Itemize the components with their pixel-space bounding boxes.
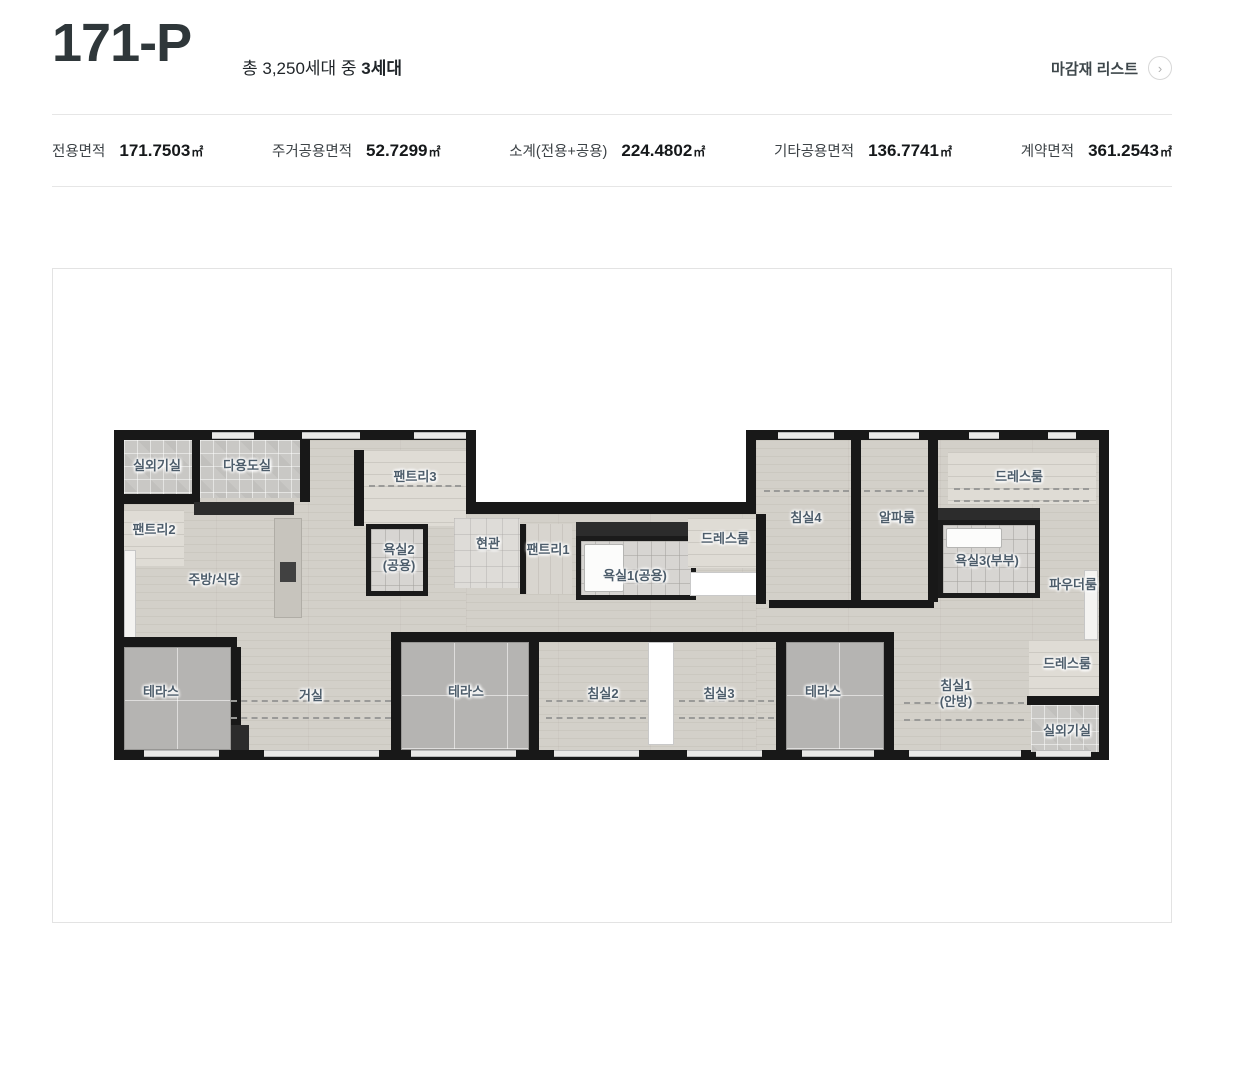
plan-wall — [756, 514, 766, 604]
content: 171-P 총 3,250세대 중 3세대 마감재 리스트 › 전용면적 171… — [52, 0, 1172, 923]
room-label: 실외기실 — [1043, 723, 1091, 739]
plan-window — [687, 750, 762, 757]
plan-dash — [764, 490, 849, 492]
room-label: 욕실2 (공용) — [383, 542, 416, 575]
plan-window — [264, 750, 379, 757]
plan-wall — [851, 440, 861, 602]
plan-wall — [529, 632, 539, 760]
spec-label: 전용면적 — [52, 140, 105, 161]
cooktop — [280, 562, 296, 582]
plan-dash — [954, 488, 1089, 490]
plan-wall — [124, 494, 192, 504]
plan-dash — [904, 719, 1024, 721]
finish-material-list-link[interactable]: 마감재 리스트 › — [1051, 56, 1172, 80]
spec-contract-area: 계약면적 361.2543 ㎡ — [1021, 140, 1172, 161]
plan-window — [969, 432, 999, 439]
room-label: 침실1 (안방) — [940, 678, 973, 711]
spec-exclusive-area: 전용면적 171.7503 ㎡ — [52, 140, 203, 161]
plan-window — [302, 432, 360, 439]
spec-unit: ㎡ — [429, 143, 441, 160]
plan-window — [1048, 432, 1076, 439]
plan-wall — [884, 632, 894, 760]
room-entrance — [454, 518, 520, 588]
room-label: 알파룸 — [879, 510, 915, 526]
room-label: 테라스 — [448, 684, 484, 700]
plan-dark — [576, 522, 696, 536]
plan-dash — [864, 490, 924, 492]
spec-other-shared-area: 기타공용면적 136.7741 ㎡ — [774, 140, 952, 161]
top-notch — [476, 430, 746, 502]
room-label: 현관 — [476, 536, 500, 552]
closet-bed2-bed3 — [648, 642, 674, 745]
bathtub-3 — [946, 528, 1002, 548]
unit-count-bold: 3세대 — [361, 59, 402, 78]
plan-wall — [231, 647, 241, 732]
room-label: 테라스 — [805, 684, 841, 700]
plan-wall — [928, 440, 938, 602]
room-label: 드레스룸 — [995, 469, 1043, 485]
room-pantry1 — [526, 524, 572, 594]
plan-wall — [674, 632, 776, 642]
plan-wall — [776, 632, 786, 760]
spec-subtotal-area: 소계(전용+공용) 224.4802 ㎡ — [509, 140, 705, 161]
plan-window — [778, 432, 834, 439]
area-specs-row: 전용면적 171.7503 ㎡ 주거공용면적 52.7299 ㎡ 소계(전용+공… — [52, 115, 1172, 187]
room-label: 침실4 — [790, 510, 821, 526]
plan-window — [554, 750, 639, 757]
room-label: 다용도실 — [223, 458, 271, 474]
room-label: 파우더룸 — [1049, 577, 1097, 593]
plan-dash — [546, 717, 646, 719]
plan-window — [909, 750, 1021, 757]
room-label: 드레스룸 — [701, 531, 749, 547]
plan-white — [690, 572, 758, 596]
plan-wall — [300, 440, 310, 502]
plan-wall — [539, 632, 651, 642]
spec-unit: ㎡ — [940, 143, 952, 160]
room-label: 침실2 — [587, 686, 618, 702]
spec-label: 주거공용면적 — [272, 140, 352, 161]
room-label: 주방/식당 — [188, 572, 239, 588]
finish-material-list-label: 마감재 리스트 — [1051, 58, 1138, 79]
page-title: 171-P — [52, 12, 191, 74]
plan-dash — [679, 717, 774, 719]
floorplan-panel: 실외기실다용도실팬트리2팬트리3주방/식당욕실2 (공용)현관팬트리1욕실1(공… — [52, 268, 1172, 923]
room-label: 테라스 — [143, 684, 179, 700]
plan-wall — [192, 440, 200, 504]
page: 171-P 총 3,250세대 중 3세대 마감재 리스트 › 전용면적 171… — [0, 0, 1236, 1084]
plan-dash — [954, 500, 1089, 502]
plan-wall — [776, 632, 894, 642]
spec-label: 계약면적 — [1021, 140, 1074, 161]
unit-count-prefix: 총 3,250세대 중 — [242, 59, 361, 78]
room-label: 드레스룸 — [1043, 656, 1091, 672]
header: 171-P 총 3,250세대 중 3세대 마감재 리스트 › — [52, 0, 1172, 114]
room-label: 팬트리1 — [526, 542, 569, 558]
floorplan: 실외기실다용도실팬트리2팬트리3주방/식당욕실2 (공용)현관팬트리1욕실1(공… — [114, 430, 1109, 760]
plan-window — [1036, 750, 1091, 757]
spec-label: 기타공용면적 — [774, 140, 854, 161]
room-label: 실외기실 — [133, 458, 181, 474]
plan-wall — [648, 632, 674, 642]
spec-shared-residential-area: 주거공용면적 52.7299 ㎡ — [272, 140, 441, 161]
room-label: 팬트리3 — [393, 469, 436, 485]
kitchen-counter — [194, 502, 294, 515]
plan-wall — [354, 450, 364, 526]
spec-value: 361.2543 — [1088, 141, 1159, 161]
room-label: 거실 — [299, 688, 323, 704]
room-label: 침실3 — [703, 686, 734, 702]
spec-unit: ㎡ — [693, 143, 705, 160]
chevron-right-circle-icon[interactable]: › — [1148, 56, 1172, 80]
spec-value: 52.7299 — [366, 141, 427, 161]
plan-dash — [369, 485, 461, 487]
plan-dash — [231, 717, 391, 719]
plan-window — [144, 750, 219, 757]
spec-unit: ㎡ — [191, 143, 203, 160]
plan-wall — [119, 637, 237, 647]
room-pantry3 — [364, 450, 466, 526]
window-left — [124, 550, 136, 640]
plan-window — [869, 432, 919, 439]
plan-dark — [231, 725, 249, 750]
spec-value: 171.7503 — [119, 141, 190, 161]
plan-wall — [391, 632, 401, 760]
spec-value: 224.4802 — [621, 141, 692, 161]
plan-window — [212, 432, 254, 439]
plan-window — [802, 750, 874, 757]
spec-value: 136.7741 — [868, 141, 939, 161]
room-label: 팬트리2 — [132, 522, 175, 538]
plan-wall — [769, 600, 934, 608]
spec-label: 소계(전용+공용) — [509, 140, 607, 161]
unit-count-subtitle: 총 3,250세대 중 3세대 — [242, 54, 402, 79]
room-label: 욕실1(공용) — [603, 568, 667, 584]
plan-dark — [938, 508, 1040, 520]
plan-window — [411, 750, 516, 757]
plan-wall — [391, 632, 539, 642]
room-label: 욕실3(부부) — [955, 553, 1019, 569]
spec-unit: ㎡ — [1160, 143, 1172, 160]
plan-window — [414, 432, 466, 439]
plan-wall — [1027, 696, 1104, 705]
